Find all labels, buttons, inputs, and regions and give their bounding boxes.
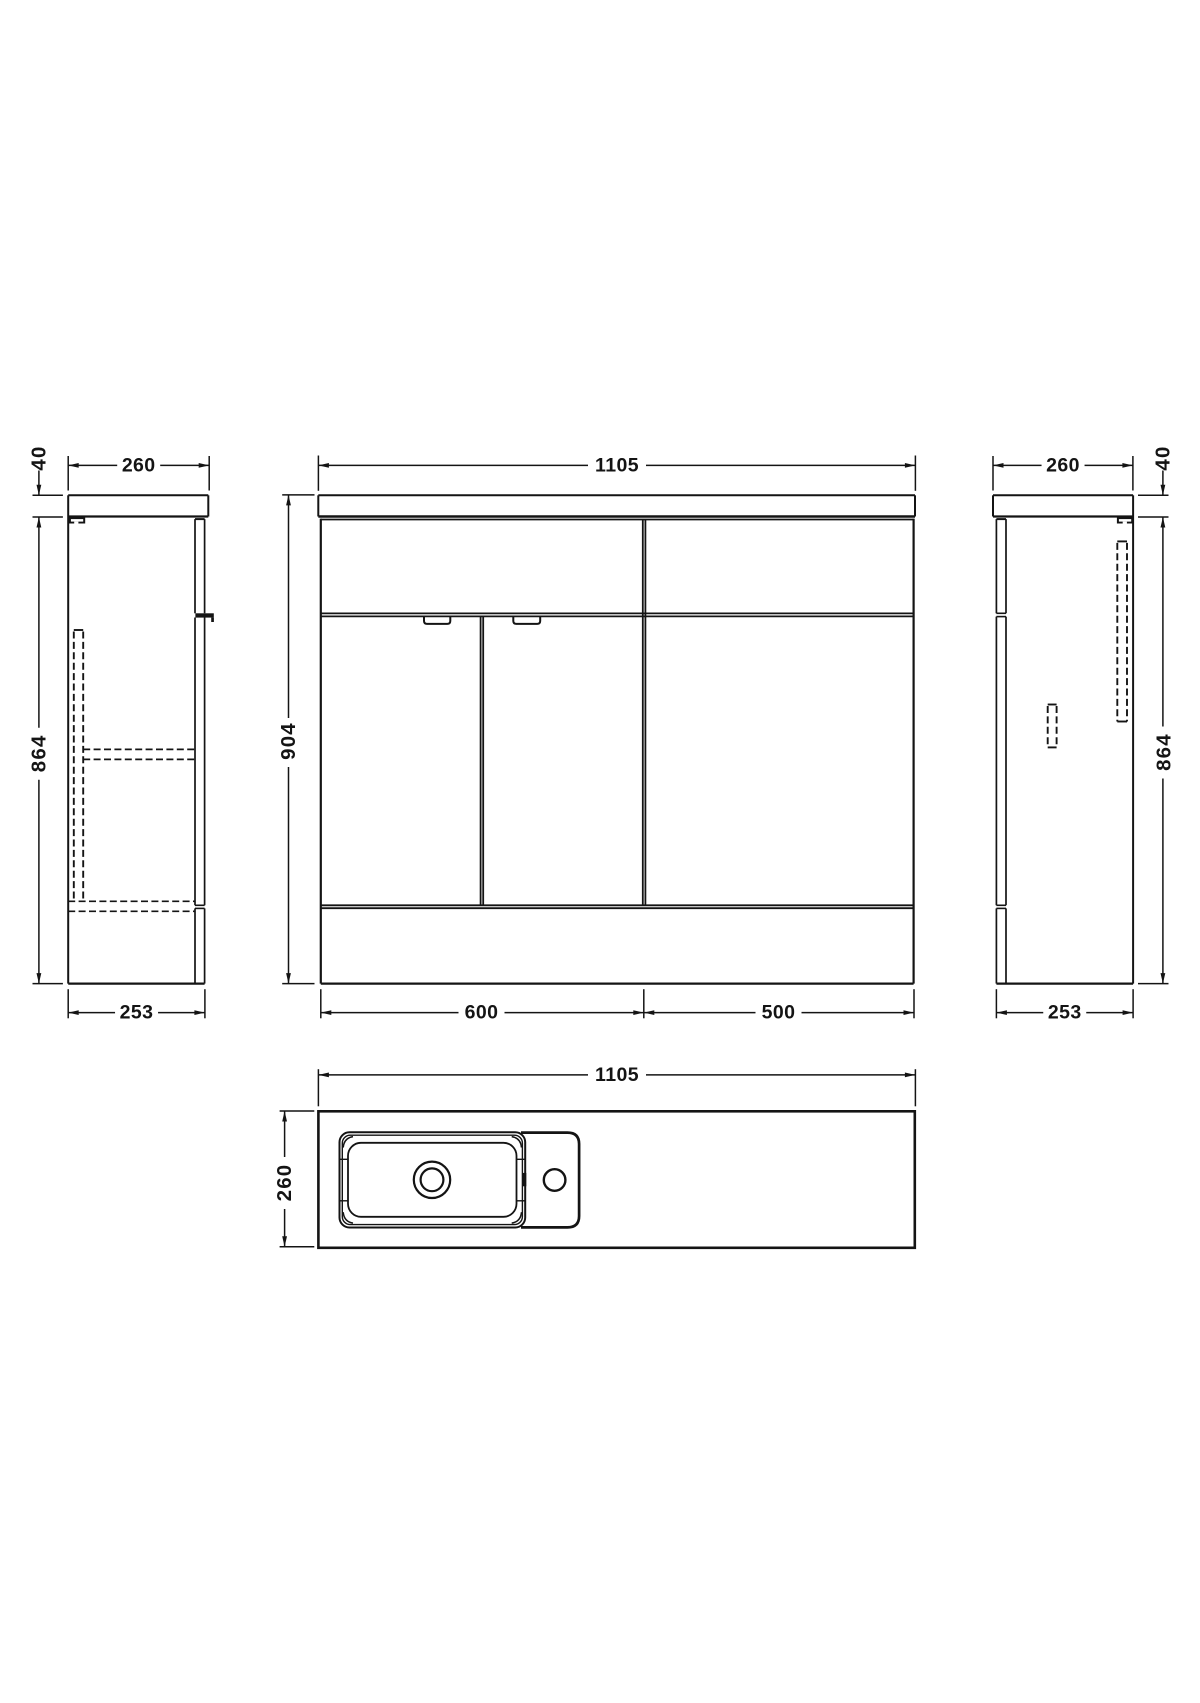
svg-text:600: 600 <box>465 1002 499 1024</box>
svg-text:40: 40 <box>1151 445 1174 470</box>
svg-text:253: 253 <box>1048 1002 1082 1024</box>
svg-text:260: 260 <box>273 1164 296 1202</box>
svg-text:904: 904 <box>277 722 300 760</box>
svg-text:253: 253 <box>120 1002 154 1024</box>
svg-text:864: 864 <box>27 734 50 772</box>
svg-text:40: 40 <box>27 445 50 470</box>
svg-text:1105: 1105 <box>595 1064 639 1086</box>
svg-text:260: 260 <box>122 454 156 476</box>
svg-text:500: 500 <box>762 1002 796 1024</box>
svg-text:864: 864 <box>1153 733 1176 771</box>
svg-text:1105: 1105 <box>595 454 639 476</box>
svg-text:260: 260 <box>1046 454 1080 476</box>
